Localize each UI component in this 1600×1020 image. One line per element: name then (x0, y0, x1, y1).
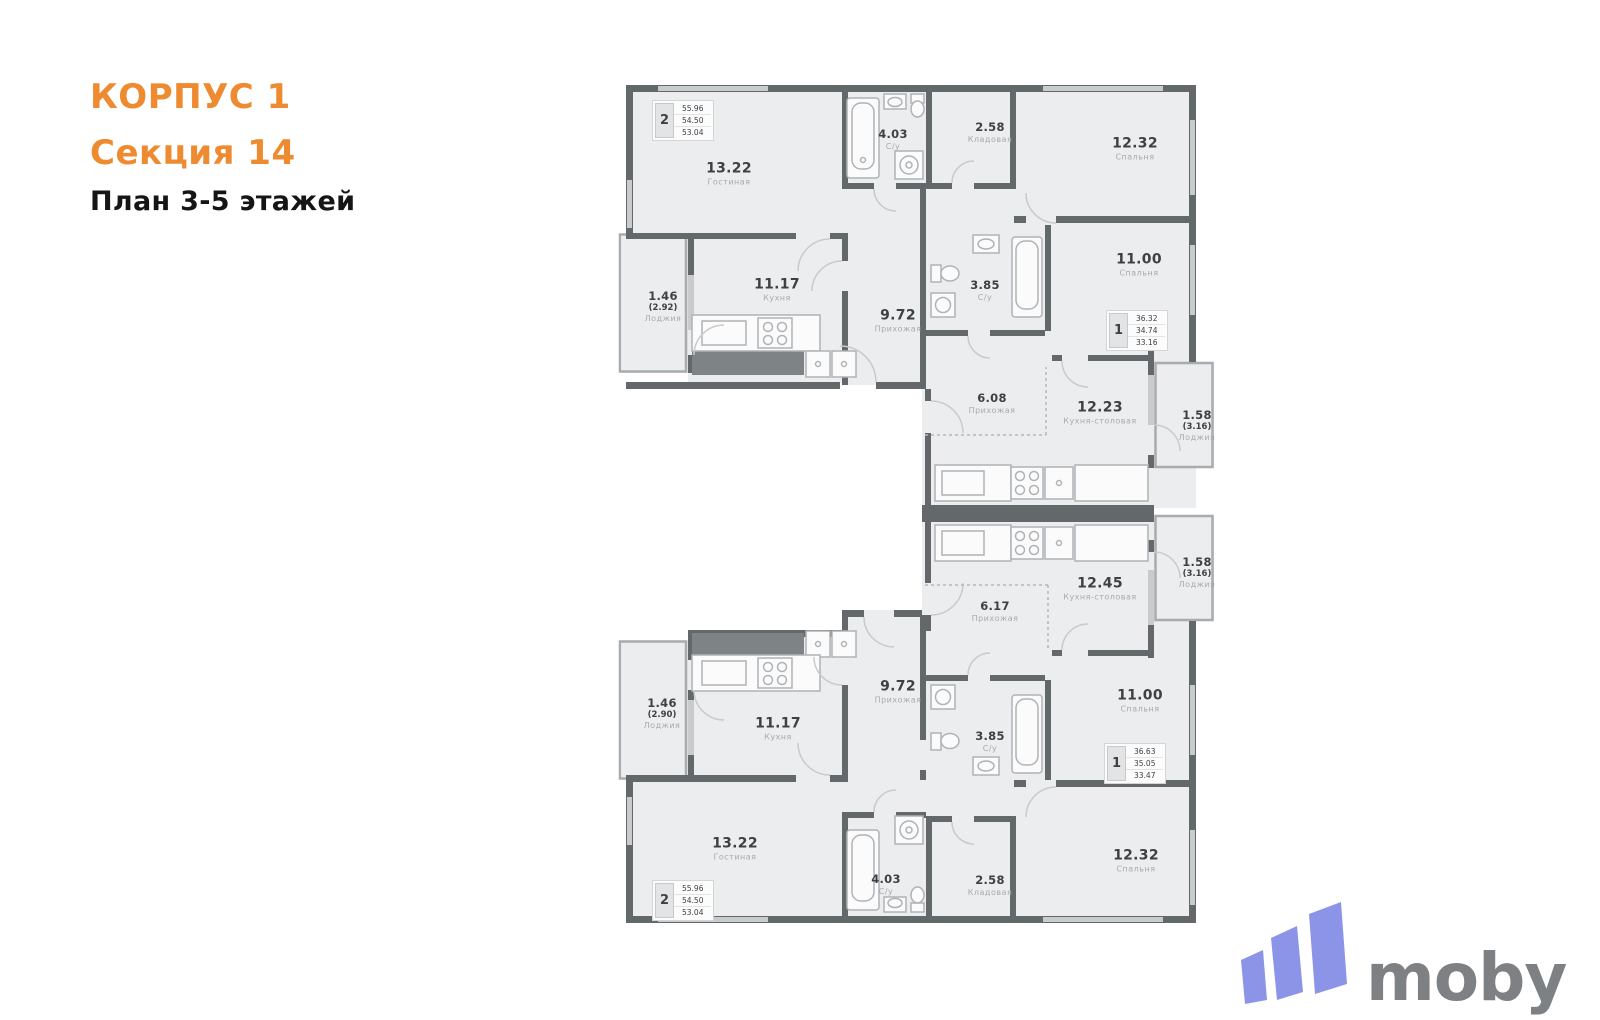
apartment-area-value: 33.16 (1128, 337, 1165, 348)
apartment-area-value: 35.05 (1126, 758, 1163, 770)
moby-logo-icon (1237, 900, 1352, 1005)
room-label-bedroom-top-right: 11.00 Спальня (1116, 253, 1162, 280)
room-name: С/у (878, 142, 908, 152)
room-name: Спальня (1117, 705, 1163, 715)
room-name: Кухня-столовая (1063, 593, 1136, 603)
room-label-loggia-bottom-right: 1.58 (3.16) Лоджия (1179, 556, 1216, 590)
room-name: Спальня (1112, 153, 1158, 163)
room-label-kitchen-bottom: 11.17 Кухня (755, 717, 801, 744)
apartment-area-value: 55.96 (674, 883, 711, 895)
room-label-su-top-right: 3.85 С/у (970, 279, 1000, 303)
kitchen-counters-dark (692, 351, 804, 655)
apartment-areas: 55.96 54.50 53.04 (674, 103, 711, 138)
room-name: С/у (975, 744, 1005, 754)
room-label-storage-top: 2.58 Кладовая (968, 121, 1013, 145)
room-area-extra: (3.16) (1179, 569, 1216, 579)
room-label-loggia-top-right: 1.58 (3.16) Лоджия (1179, 409, 1216, 443)
room-label-loggia-top-left: 1.46 (2.92) Лоджия (645, 290, 682, 324)
room-label-living-top: 13.22 Гостиная (706, 162, 752, 189)
room-label-hall-bottom: 9.72 Прихожая (875, 680, 922, 707)
room-name: Кухня (754, 294, 800, 304)
room-name: Кухня-столовая (1063, 417, 1136, 427)
room-area: 13.22 (712, 837, 758, 852)
room-area: 6.17 (972, 600, 1019, 613)
room-label-hall-top: 9.72 Прихожая (875, 309, 922, 336)
room-area-extra: (2.90) (644, 710, 681, 720)
room-area: 3.85 (970, 279, 1000, 292)
room-area-extra: (2.92) (645, 303, 682, 313)
moby-logo: moby (1237, 897, 1566, 1005)
room-area: 12.45 (1063, 577, 1136, 592)
apartment-area-value: 34.74 (1128, 325, 1165, 337)
room-label-kitchen-dining-bottom-right: 12.45 Кухня-столовая (1063, 577, 1136, 604)
room-area: 12.23 (1063, 401, 1136, 416)
apartment-badge-bottom-right: 1 36.63 35.05 33.47 (1104, 743, 1166, 784)
apartment-rooms-count: 1 (1107, 746, 1126, 781)
room-area-extra: (3.16) (1179, 422, 1216, 432)
room-area: 1.46 (645, 290, 682, 303)
room-area: 1.58 (1179, 556, 1216, 569)
room-label-bedroom-bottom: 12.32 Спальня (1113, 849, 1159, 876)
room-area: 11.00 (1116, 253, 1162, 268)
apartment-areas: 36.32 34.74 33.16 (1128, 313, 1165, 348)
room-area: 11.17 (754, 278, 800, 293)
room-name: Прихожая (972, 614, 1019, 624)
room-label-loggia-bottom-left: 1.46 (2.90) Лоджия (644, 697, 681, 731)
room-name: Лоджия (1179, 580, 1216, 590)
room-label-living-bottom: 13.22 Гостиная (712, 837, 758, 864)
room-label-su-bottom-right: 3.85 С/у (975, 730, 1005, 754)
apartment-badge-bottom-left: 2 55.96 54.50 53.04 (652, 880, 714, 921)
room-area: 1.46 (644, 697, 681, 710)
floorplan-drawing (618, 85, 1218, 925)
room-area: 13.22 (706, 162, 752, 177)
apartment-area-value: 53.04 (674, 127, 711, 138)
room-area: 9.72 (875, 680, 922, 695)
room-area: 9.72 (875, 309, 922, 324)
room-label-kitchen-top: 11.17 Кухня (754, 278, 800, 305)
room-name: Гостиная (706, 178, 752, 188)
room-area: 1.58 (1179, 409, 1216, 422)
apartment-areas: 36.63 35.05 33.47 (1126, 746, 1163, 781)
room-area: 3.85 (975, 730, 1005, 743)
room-area: 11.17 (755, 717, 801, 732)
room-area: 4.03 (871, 873, 901, 886)
room-name: Прихожая (969, 406, 1016, 416)
apartment-area-value: 33.47 (1126, 770, 1163, 781)
room-name: Спальня (1116, 269, 1162, 279)
room-name: Прихожая (875, 325, 922, 335)
moby-logo-text: moby (1366, 951, 1566, 1005)
apartment-area-value: 36.63 (1126, 746, 1163, 758)
room-area: 2.58 (968, 874, 1013, 887)
room-name: Лоджия (1179, 433, 1216, 443)
room-name: Лоджия (644, 721, 681, 731)
room-area: 2.58 (968, 121, 1013, 134)
room-name: Кладовая (968, 135, 1013, 145)
room-name: Прихожая (875, 696, 922, 706)
apartment-badge-top-left: 2 55.96 54.50 53.04 (652, 100, 714, 141)
room-name: С/у (871, 887, 901, 897)
room-area: 4.03 (878, 128, 908, 141)
apartment-area-value: 36.32 (1128, 313, 1165, 325)
apartment-rooms-count: 2 (655, 103, 674, 138)
apartment-areas: 55.96 54.50 53.04 (674, 883, 711, 918)
apartment-area-value: 54.50 (674, 895, 711, 907)
room-name: Спальня (1113, 865, 1159, 875)
room-name: Кладовая (968, 888, 1013, 898)
apartment-area-value: 54.50 (674, 115, 711, 127)
room-label-hall-bottom-right: 6.17 Прихожая (972, 600, 1019, 624)
room-name: Гостиная (712, 853, 758, 863)
apartment-rooms-count: 1 (1109, 313, 1128, 348)
apartment-badge-top-right: 1 36.32 34.74 33.16 (1106, 310, 1168, 351)
room-area: 12.32 (1113, 849, 1159, 864)
room-label-su-top: 4.03 С/у (878, 128, 908, 152)
room-name: Кухня (755, 733, 801, 743)
room-label-hall-top-right: 6.08 Прихожая (969, 392, 1016, 416)
room-area: 12.32 (1112, 137, 1158, 152)
apartment-area-value: 53.04 (674, 907, 711, 918)
room-label-storage-bottom: 2.58 Кладовая (968, 874, 1013, 898)
room-label-bedroom-bottom-right: 11.00 Спальня (1117, 689, 1163, 716)
apartment-rooms-count: 2 (655, 883, 674, 918)
room-label-bedroom-top: 12.32 Спальня (1112, 137, 1158, 164)
apartment-area-value: 55.96 (674, 103, 711, 115)
floorplan: 13.22 Гостиная 4.03 С/у 2.58 Кладовая 12… (0, 0, 1600, 1020)
room-area: 6.08 (969, 392, 1016, 405)
room-label-su-bottom: 4.03 С/у (871, 873, 901, 897)
room-area: 11.00 (1117, 689, 1163, 704)
room-label-kitchen-dining-top-right: 12.23 Кухня-столовая (1063, 401, 1136, 428)
room-name: С/у (970, 293, 1000, 303)
room-name: Лоджия (645, 314, 682, 324)
